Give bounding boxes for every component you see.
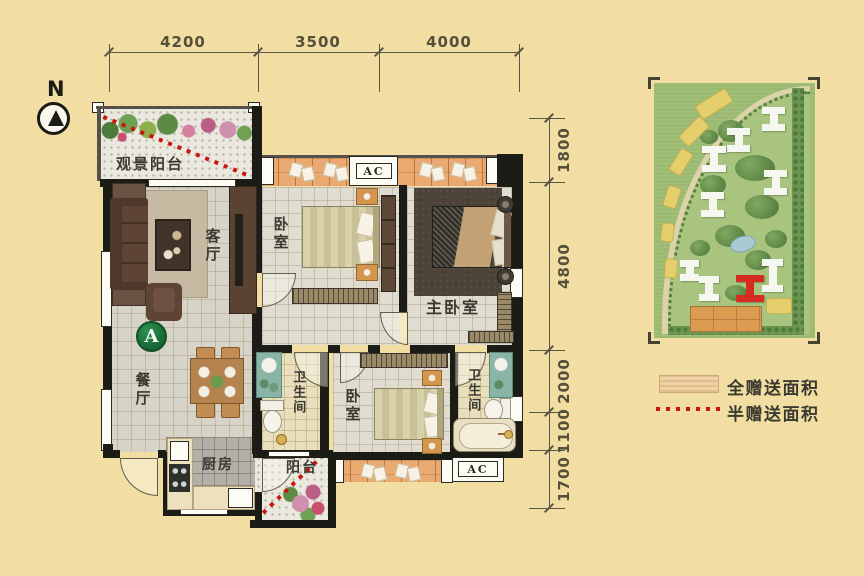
bottom-balcony-wood-floor	[333, 460, 443, 482]
dim-top-2: 3500	[278, 33, 358, 51]
dim-line	[109, 52, 520, 53]
bed2	[374, 388, 444, 440]
building-icon	[701, 192, 724, 217]
ac-label-top: AC	[356, 165, 392, 178]
sofa	[122, 206, 148, 282]
closet	[360, 353, 448, 368]
tree-strip	[792, 88, 804, 334]
ac-label-bottom: AC	[458, 463, 498, 476]
dining-table	[190, 358, 244, 404]
unit-badge: A	[136, 321, 167, 352]
master-bed	[432, 206, 512, 268]
legend-label-full: 全赠送面积	[727, 374, 820, 399]
window	[148, 179, 236, 187]
window	[101, 389, 112, 451]
building-icon	[764, 170, 787, 195]
room-label-bedroom: 卧室	[272, 216, 289, 252]
coffee-table	[155, 219, 191, 271]
tv	[235, 214, 243, 286]
dim-top-1: 4200	[143, 33, 223, 51]
north-label: N	[47, 78, 65, 101]
dim-right-2: 4800	[555, 238, 573, 294]
room-label-master: 主卧室	[426, 299, 480, 317]
vanity	[256, 352, 282, 398]
dim-right-3: 2000	[555, 353, 573, 409]
dim-right-5: 1700	[555, 451, 573, 507]
dim-top-3: 4000	[409, 33, 489, 51]
building-icon	[762, 259, 783, 292]
round-table	[497, 268, 514, 285]
room-label-bedroom2: 卧室	[344, 388, 361, 424]
tv-cabinet	[229, 186, 257, 314]
dining-chair	[221, 403, 240, 418]
dim-right-1: 1800	[555, 122, 573, 178]
fridge	[228, 488, 253, 508]
dresser	[292, 288, 378, 304]
floorplan-page: N 4200 3500 4000 1800 4800 2000 11	[0, 0, 864, 576]
nightstand	[422, 370, 442, 386]
wardrobe	[381, 195, 396, 292]
site-map	[654, 83, 815, 338]
room-label-dining: 餐厅	[134, 372, 151, 408]
room-label-living: 客厅	[204, 228, 221, 264]
dresser	[497, 292, 512, 336]
nightstand	[356, 188, 378, 205]
legend-label-half: 半赠送面积	[727, 400, 820, 425]
building-icon	[699, 276, 719, 301]
half-gift-swatch	[656, 407, 720, 411]
dresser	[468, 331, 514, 343]
entry-door	[120, 458, 158, 496]
toilet	[263, 410, 282, 433]
bed	[302, 206, 380, 268]
commercial-block	[690, 306, 762, 332]
room-label-kitchen: 厨房	[202, 458, 234, 473]
compass-icon	[37, 102, 70, 135]
building-icon	[680, 260, 699, 281]
stove	[169, 464, 190, 492]
bathtub	[453, 418, 516, 452]
nightstand	[422, 438, 442, 454]
faucet-icon	[504, 430, 513, 439]
dining-chair	[196, 403, 215, 418]
room-label-bathroom1: 卫生间	[290, 370, 304, 415]
sink	[170, 441, 189, 461]
room-label-bathroom2: 卫生间	[465, 368, 479, 413]
room-label-view-balcony: 观景阳台	[116, 156, 184, 173]
floor-drain	[276, 434, 287, 445]
room-label-balcony: 阳台	[286, 461, 318, 476]
building-icon	[727, 128, 750, 152]
nightstand	[356, 264, 378, 281]
window	[268, 451, 310, 457]
vanity	[489, 352, 513, 398]
building-icon	[702, 146, 726, 172]
round-table	[497, 196, 514, 213]
balcony-flowers	[278, 476, 328, 522]
highlighted-building-icon	[736, 275, 764, 302]
north-arrow-icon	[48, 110, 64, 126]
full-gift-swatch	[659, 375, 719, 393]
pillar	[261, 157, 274, 185]
building-icon	[762, 107, 785, 131]
